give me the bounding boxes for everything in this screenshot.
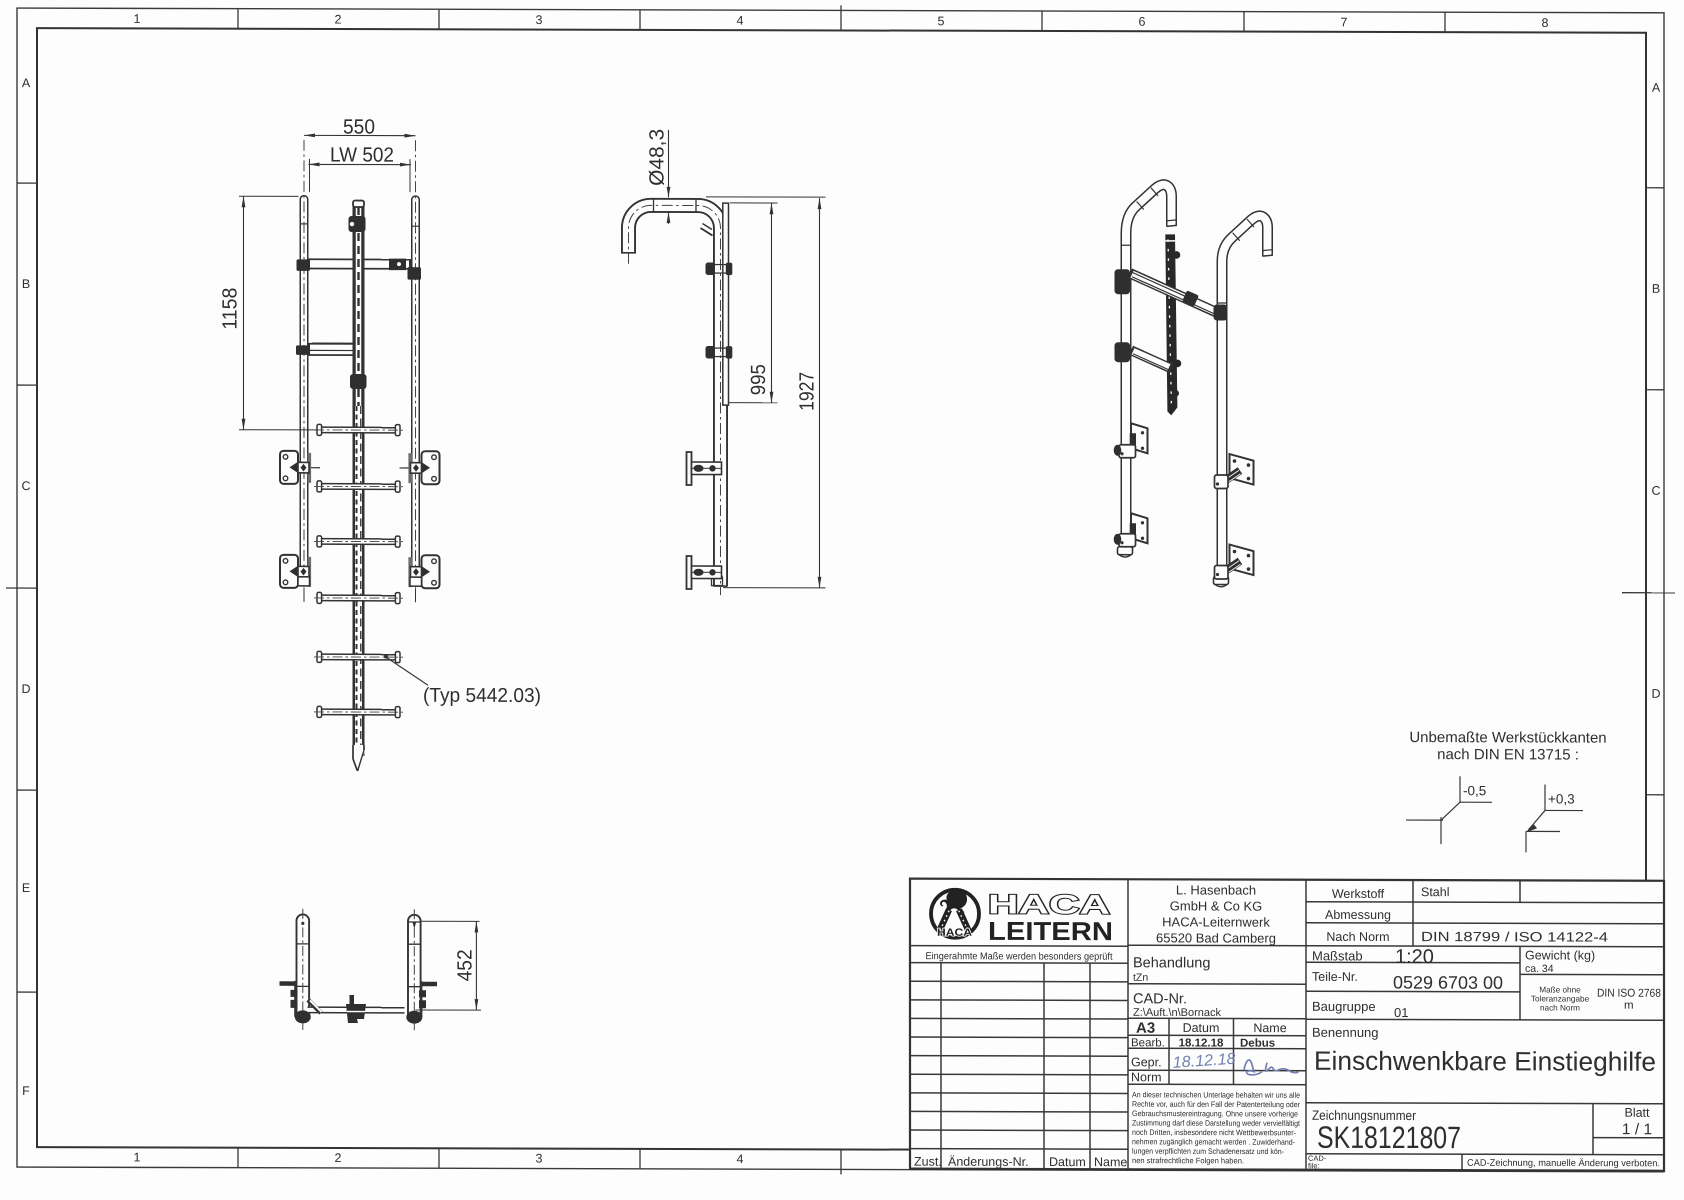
svg-text:2: 2 xyxy=(335,1151,342,1165)
svg-text:(Typ 5442.03): (Typ 5442.03) xyxy=(423,685,541,707)
svg-text:LEITERN: LEITERN xyxy=(988,916,1113,946)
svg-text:4: 4 xyxy=(737,1152,744,1166)
svg-text:0529 6703 00: 0529 6703 00 xyxy=(1393,973,1503,993)
svg-text:1:20: 1:20 xyxy=(1395,946,1434,968)
svg-text:Gewicht (kg): Gewicht (kg) xyxy=(1525,948,1595,962)
svg-text:Name: Name xyxy=(1094,1155,1127,1169)
svg-text:B: B xyxy=(22,277,30,291)
svg-text:nehmen zugänglich gemacht werd: nehmen zugänglich gemacht werden . Zuwid… xyxy=(1132,1137,1295,1146)
svg-text:5: 5 xyxy=(938,14,945,28)
svg-text:nach Norm: nach Norm xyxy=(1540,1003,1580,1012)
svg-text:452: 452 xyxy=(454,949,477,981)
svg-text:1927: 1927 xyxy=(796,372,819,411)
svg-text:Maßstab: Maßstab xyxy=(1312,948,1363,963)
svg-text:DIN 18799 / ISO 14122-4: DIN 18799 / ISO 14122-4 xyxy=(1421,929,1609,945)
svg-text:Datum: Datum xyxy=(1183,1021,1220,1035)
svg-text:-0,5: -0,5 xyxy=(1463,783,1486,798)
svg-text:Z:\Auft.\n\Bornack: Z:\Auft.\n\Bornack xyxy=(1133,1007,1222,1019)
svg-text:Teile-Nr.: Teile-Nr. xyxy=(1312,970,1358,984)
svg-text:Baugruppe: Baugruppe xyxy=(1312,999,1376,1014)
svg-text:noch Dritten, insbesondere nic: noch Dritten, insbesondere nicht Wettbew… xyxy=(1132,1128,1296,1137)
svg-text:nach DIN EN 13715 :: nach DIN EN 13715 : xyxy=(1437,746,1579,763)
svg-text:01: 01 xyxy=(1394,1005,1408,1020)
svg-text:995: 995 xyxy=(747,364,770,395)
svg-text:m: m xyxy=(1624,1000,1634,1012)
svg-text:3: 3 xyxy=(536,13,543,27)
svg-text:Stahl: Stahl xyxy=(1421,885,1450,899)
svg-text:+0,3: +0,3 xyxy=(1548,791,1575,806)
svg-text:GmbH & Co KG: GmbH & Co KG xyxy=(1170,898,1262,913)
svg-text:tZn: tZn xyxy=(1133,972,1148,984)
svg-text:ca. 34: ca. 34 xyxy=(1525,963,1554,975)
svg-text:CAD-Nr.: CAD-Nr. xyxy=(1133,991,1187,1007)
svg-text:LW 502: LW 502 xyxy=(330,143,394,166)
svg-text:Norm: Norm xyxy=(1131,1070,1162,1084)
svg-text:F: F xyxy=(22,1084,30,1098)
svg-text:2: 2 xyxy=(335,12,342,26)
svg-text:8: 8 xyxy=(1542,16,1549,30)
svg-text:1 / 1: 1 / 1 xyxy=(1622,1121,1652,1138)
svg-text:An dieser technischen Unterlag: An dieser technischen Unterlage behalten… xyxy=(1132,1090,1300,1099)
svg-text:Zustimmung darf diese Darstell: Zustimmung darf diese Darstellung weder … xyxy=(1132,1118,1301,1127)
svg-text:3: 3 xyxy=(536,1152,543,1166)
svg-text:18.12.18: 18.12.18 xyxy=(1179,1037,1224,1049)
svg-text:1: 1 xyxy=(134,1150,141,1164)
svg-text:file:: file: xyxy=(1308,1161,1320,1170)
svg-text:Nach Norm: Nach Norm xyxy=(1326,930,1389,944)
svg-text:Blatt: Blatt xyxy=(1624,1106,1650,1120)
svg-text:lungen verpflichten zum Schade: lungen verpflichten zum Schadenersatz un… xyxy=(1132,1147,1284,1156)
svg-text:nen strafrechtliche Folgen hab: nen strafrechtliche Folgen haben. xyxy=(1132,1156,1244,1165)
svg-text:4: 4 xyxy=(737,14,744,28)
svg-text:Unbemaßte Werkstückkanten: Unbemaßte Werkstückkanten xyxy=(1409,729,1606,747)
svg-text:B: B xyxy=(1652,282,1660,296)
svg-text:C: C xyxy=(1651,484,1660,498)
svg-text:1: 1 xyxy=(134,12,141,26)
svg-text:E: E xyxy=(22,881,30,895)
svg-text:Toleranzangabe: Toleranzangabe xyxy=(1531,994,1590,1003)
svg-text:Ø48,3: Ø48,3 xyxy=(646,129,669,186)
svg-text:Zust.: Zust. xyxy=(914,1155,942,1169)
svg-text:CAD-Zeichnung, manuelle Änderu: CAD-Zeichnung, manuelle Änderung verbote… xyxy=(1467,1158,1660,1170)
svg-text:HACA-Leiternwerk: HACA-Leiternwerk xyxy=(1162,914,1270,929)
svg-text:Benennung: Benennung xyxy=(1312,1025,1379,1040)
svg-text:1158: 1158 xyxy=(219,288,242,330)
svg-text:65520 Bad Camberg: 65520 Bad Camberg xyxy=(1156,930,1276,945)
svg-text:D: D xyxy=(1651,687,1660,701)
svg-text:Werkstoff: Werkstoff xyxy=(1332,887,1385,901)
svg-text:DIN ISO 2768: DIN ISO 2768 xyxy=(1597,988,1661,1000)
svg-text:7: 7 xyxy=(1341,15,1348,29)
svg-text:Gepr.: Gepr. xyxy=(1131,1055,1162,1069)
svg-text:Bearb.: Bearb. xyxy=(1131,1037,1165,1049)
svg-text:Rechte vor, auch für den Fall: Rechte vor, auch für den Fall der Patent… xyxy=(1132,1100,1300,1109)
svg-text:Änderungs-Nr.: Änderungs-Nr. xyxy=(948,1155,1029,1169)
svg-text:Gebrauchsmustereintragung. Ohn: Gebrauchsmustereintragung. Ohne unsere v… xyxy=(1132,1109,1298,1118)
svg-text:Einschwenkbare Einstieghilfe: Einschwenkbare Einstieghilfe xyxy=(1314,1046,1656,1077)
svg-text:A: A xyxy=(22,76,31,90)
svg-text:Abmessung: Abmessung xyxy=(1325,908,1391,922)
svg-text:A: A xyxy=(1652,81,1661,95)
svg-text:6: 6 xyxy=(1139,15,1146,29)
svg-text:Name: Name xyxy=(1253,1021,1286,1035)
svg-text:Eingerahmte Maße werden besond: Eingerahmte Maße werden besonders geprüf… xyxy=(926,951,1113,963)
svg-text:C: C xyxy=(21,479,30,493)
svg-text:A3: A3 xyxy=(1136,1020,1155,1037)
svg-text:L. Hasenbach: L. Hasenbach xyxy=(1176,882,1256,897)
svg-text:Maße ohne: Maße ohne xyxy=(1539,985,1581,994)
svg-text:HACA: HACA xyxy=(937,927,972,939)
svg-text:Datum: Datum xyxy=(1049,1155,1086,1169)
svg-text:Behandlung: Behandlung xyxy=(1133,955,1210,971)
svg-text:D: D xyxy=(21,682,30,696)
svg-text:Debus: Debus xyxy=(1240,1038,1275,1050)
svg-text:SK18121807: SK18121807 xyxy=(1317,1120,1461,1155)
